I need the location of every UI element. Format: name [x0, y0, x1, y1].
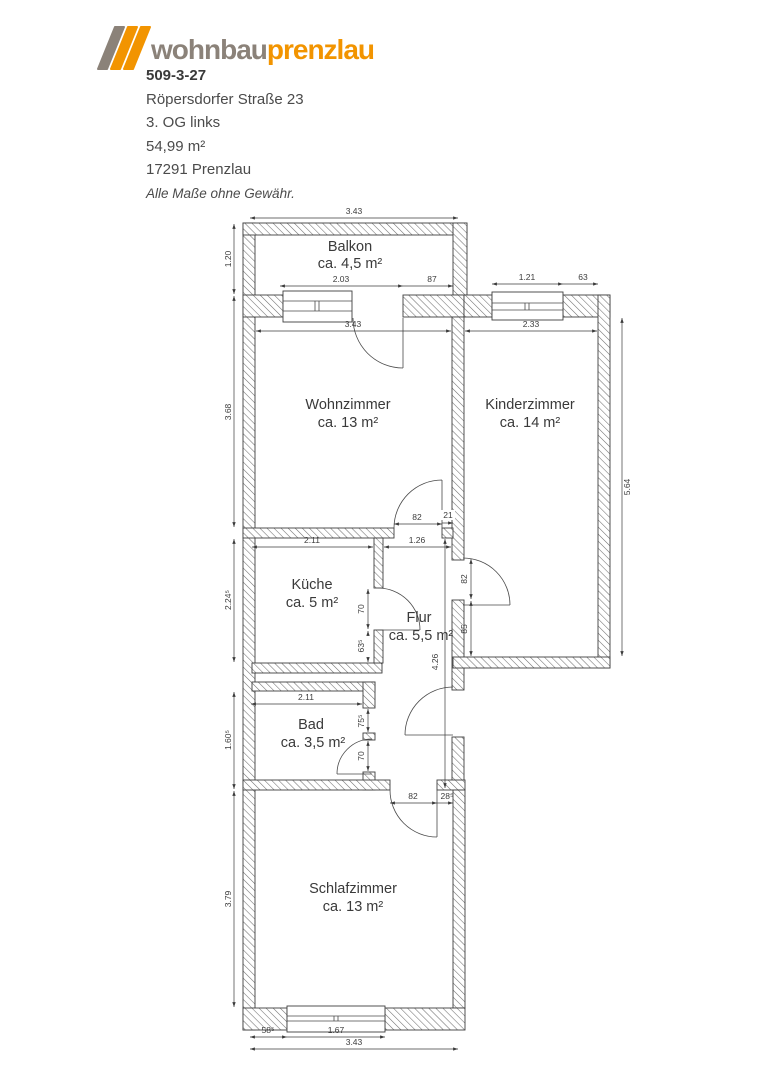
dim-sz-window-side: 58⁵ [262, 1025, 275, 1035]
dim-bad-door: 70 [356, 751, 366, 761]
dim-sz-width: 3.43 [346, 1037, 363, 1047]
dim-wz-window-side: 87 [427, 274, 437, 284]
dim-sz-window: 1.67 [328, 1025, 345, 1035]
room-wohnzimmer-name: Wohnzimmer [305, 397, 390, 413]
dim-kz-door: 82 [459, 574, 469, 584]
dim-flur-height: 4.26 [430, 653, 440, 670]
room-kinderzimmer-name: Kinderzimmer [485, 397, 575, 413]
dim-sz-door-stub: 28⁵ [441, 791, 454, 801]
dim-wz-window: 2.03 [333, 274, 350, 284]
dim-wz-door: 82 [412, 512, 422, 522]
room-kueche-area: ca. 5 m² [286, 595, 339, 611]
room-labels: Balkon ca. 4,5 m² Wohnzimmer ca. 13 m² K… [281, 239, 575, 915]
dim-balkon-height: 1.20 [223, 250, 233, 267]
dim-kz-width: 2.33 [523, 319, 540, 329]
dim-kueche-width: 2.11 [304, 535, 320, 545]
room-kinderzimmer-area: ca. 14 m² [500, 415, 561, 431]
dim-kz-height: 5.64 [622, 478, 632, 495]
room-bad-area: ca. 3,5 m² [281, 735, 346, 751]
dim-flur-width: 1.26 [409, 535, 426, 545]
room-kueche-name: Küche [291, 577, 332, 593]
floorplan-drawing: 3.43 2.03 87 1.21 63 3.43 2.33 1.20 3.68… [0, 0, 764, 1080]
room-balkon-area: ca. 4,5 m² [318, 256, 383, 272]
kids-room-door [463, 558, 510, 605]
living-room-window [283, 291, 352, 322]
dim-kz-door-below: 85 [459, 624, 469, 634]
room-flur-area: ca. 5,5 m² [389, 628, 454, 644]
room-bad-name: Bad [298, 717, 324, 733]
dim-balkon-width: 3.43 [346, 206, 363, 216]
dimension-labels: 3.43 2.03 87 1.21 63 3.43 2.33 1.20 3.68… [223, 206, 632, 1047]
dim-bad-height: 1.60⁵ [223, 730, 233, 750]
dim-wz-width: 3.43 [345, 319, 362, 329]
dim-kueche-wall: 63⁵ [356, 640, 366, 653]
dim-wz-door-stub: 21 [443, 510, 453, 520]
dim-sz-height: 3.79 [223, 890, 233, 907]
dim-kz-window-side: 63 [578, 272, 588, 282]
dim-sz-door: 82 [408, 791, 418, 801]
walls [243, 223, 610, 1030]
room-balkon-name: Balkon [328, 239, 372, 255]
dim-kz-window: 1.21 [519, 272, 536, 282]
room-schlafzimmer-area: ca. 13 m² [323, 899, 384, 915]
room-flur-name: Flur [407, 610, 432, 626]
room-schlafzimmer-name: Schlafzimmer [309, 881, 397, 897]
room-wohnzimmer-area: ca. 13 m² [318, 415, 379, 431]
dim-kueche-height: 2.24⁵ [223, 590, 233, 610]
dim-bad-pass: 75⁵ [356, 715, 366, 728]
dim-wz-height: 3.68 [223, 403, 233, 420]
dim-bad-width: 2.11 [298, 692, 314, 702]
dim-kueche-door: 70 [356, 604, 366, 614]
kids-room-window [492, 292, 563, 320]
entrance-door [405, 687, 453, 735]
